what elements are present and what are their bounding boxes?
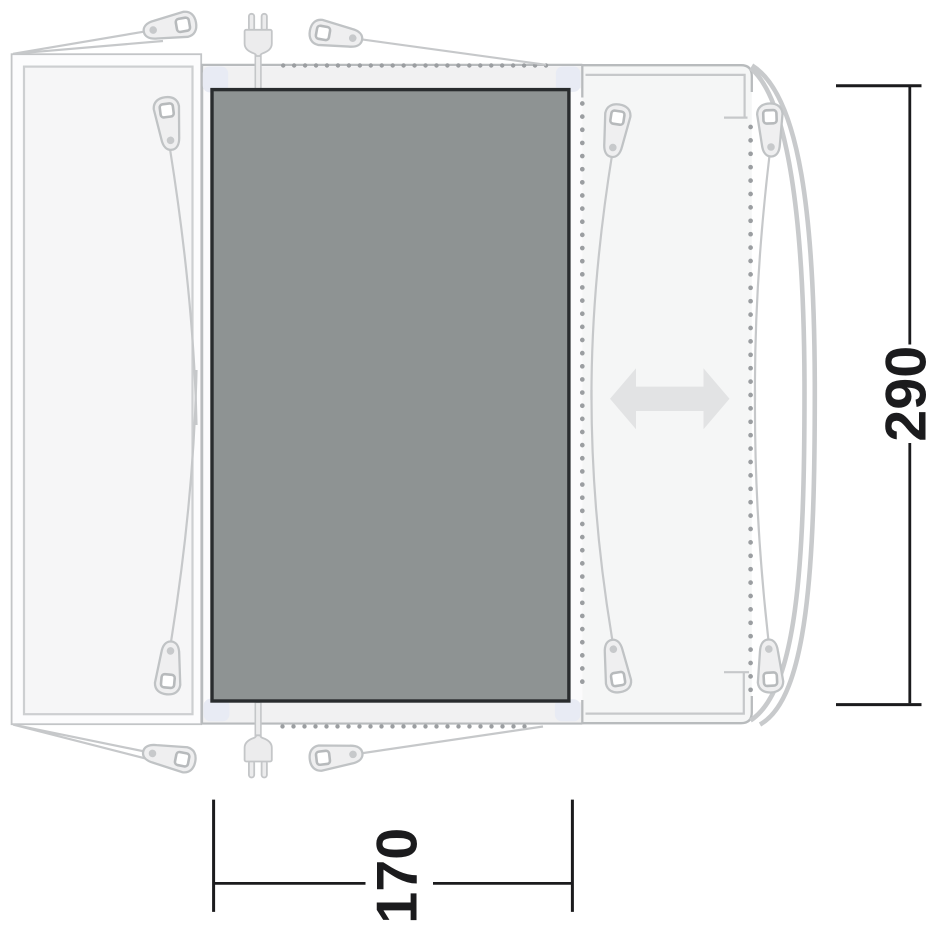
svg-text:290: 290 (874, 346, 938, 442)
svg-text:170: 170 (365, 828, 429, 924)
